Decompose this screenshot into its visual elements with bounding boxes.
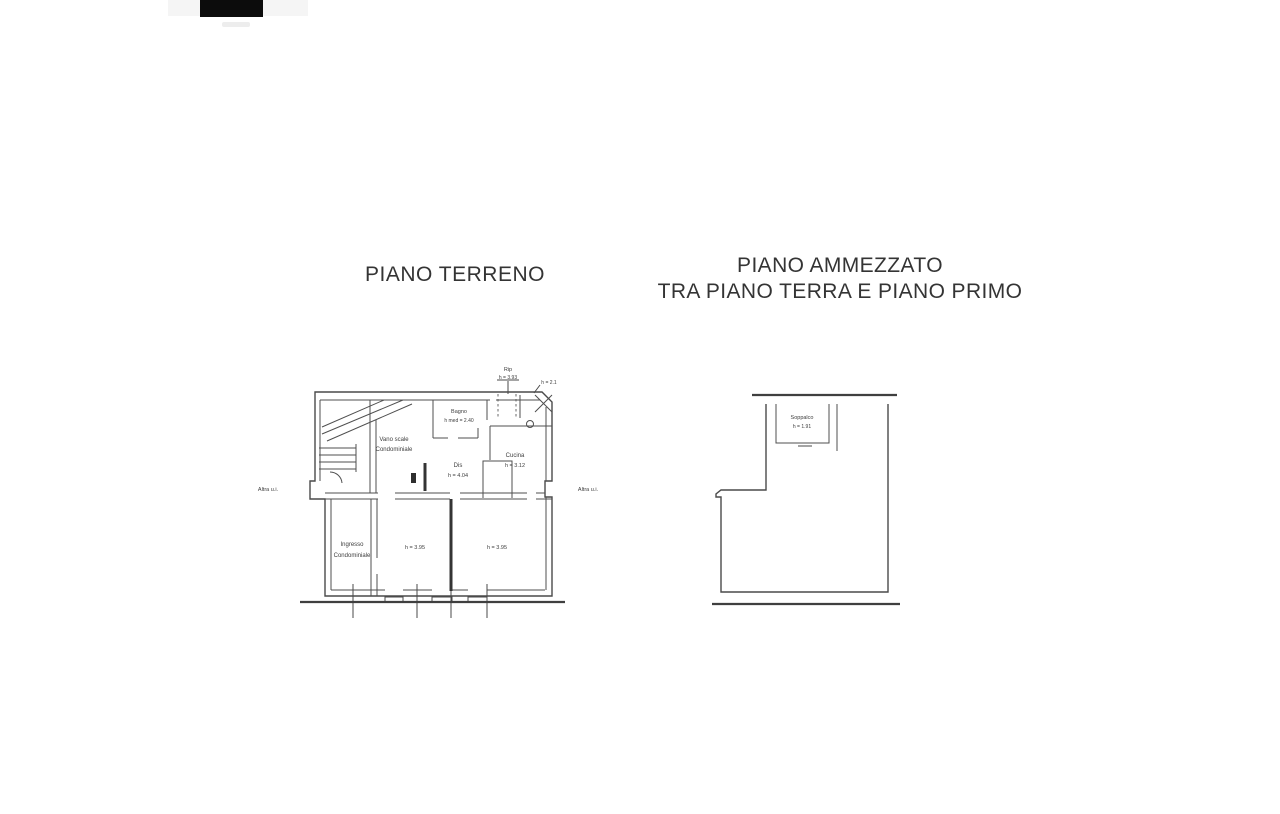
ingresso-label-line2: Condominiale xyxy=(334,553,371,559)
mezzanine-outline xyxy=(716,404,888,592)
vano-scale-label-line2: Condominiale xyxy=(376,447,413,453)
bagno-label: Bagno xyxy=(451,409,467,415)
soppalco-height-label: h = 1.91 xyxy=(793,424,811,430)
rip-height-label: h = 3.93 xyxy=(499,375,517,381)
mezzanine-title-line1: PIANO AMMEZZATO xyxy=(637,253,1043,279)
outer-wall xyxy=(310,392,552,596)
bagno-height-label: h med = 2.40 xyxy=(444,418,474,424)
altra-ui-left-label: Altra u.i. xyxy=(258,487,279,493)
ingresso-label-line1: Ingresso xyxy=(340,542,364,548)
dis-label: Dis xyxy=(454,463,463,469)
altra-ui-right-label: Altra u.i. xyxy=(578,487,599,493)
corner-note-label: h = 2.1 xyxy=(541,380,557,386)
cucina-height-label: h = 3.12 xyxy=(505,463,525,469)
vano-scale-label-line1: Vano scale xyxy=(379,437,409,443)
room-right-height-label: h = 3.95 xyxy=(487,545,507,551)
room-left-height-label: h = 3.95 xyxy=(405,545,425,551)
mezzanine-title: PIANO AMMEZZATO TRA PIANO TERRA E PIANO … xyxy=(637,253,1043,305)
ground-floor-outline xyxy=(310,392,552,596)
scanned-floorplan-page: { "document": { "ground_floor": { "title… xyxy=(0,0,1280,814)
rip-label: Rip xyxy=(504,367,512,373)
mezzanine-plan: Soppalco h = 1.91 xyxy=(705,388,910,610)
scan-artifact-bar xyxy=(200,0,263,17)
ground-floor-title: PIANO TERRENO xyxy=(330,263,580,287)
soppalco-label: Soppalco xyxy=(791,415,814,421)
mezzanine-title-line2: TRA PIANO TERRA E PIANO PRIMO xyxy=(637,279,1043,305)
mezzanine-labels: Soppalco h = 1.91 xyxy=(791,415,814,430)
ground-floor-plan: Rip h = 3.93 h = 2.1 Bagno h med = 2.40 … xyxy=(255,360,620,620)
scan-artifact-smudge xyxy=(222,22,250,27)
dis-height-label: h = 4.04 xyxy=(448,473,468,479)
cucina-label: Cucina xyxy=(506,453,525,459)
